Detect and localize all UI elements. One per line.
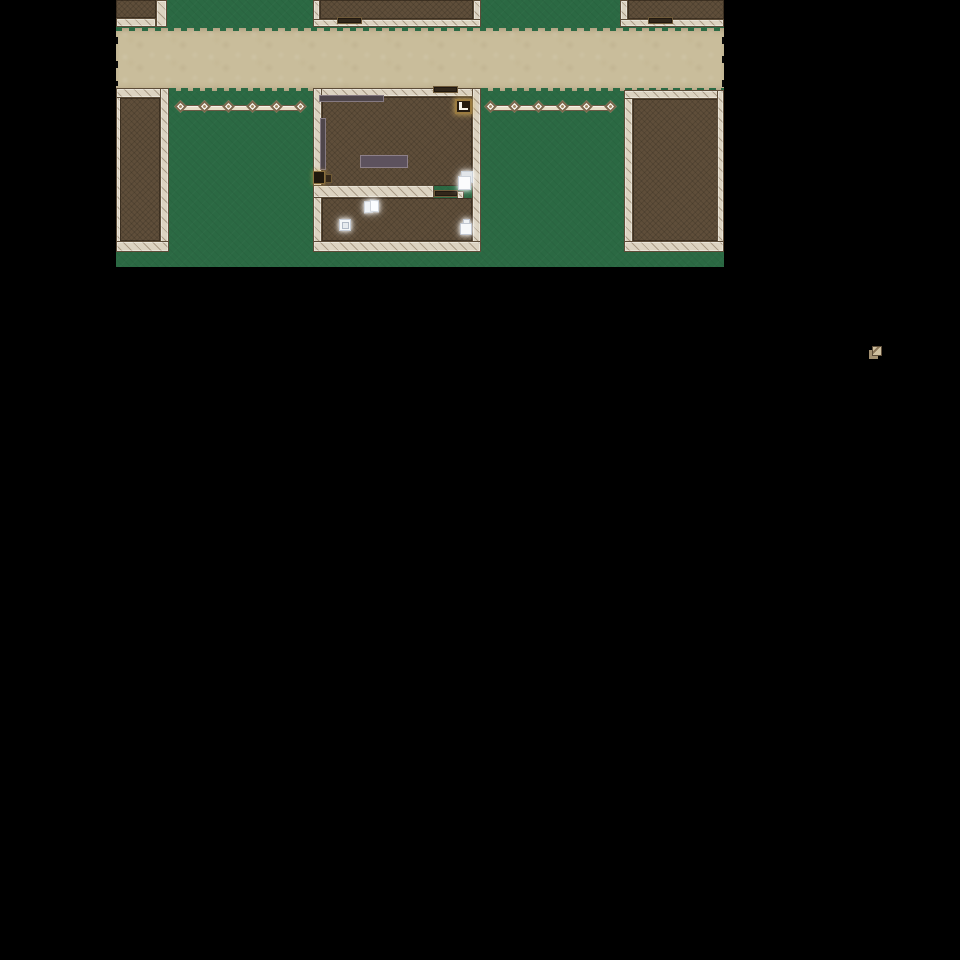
shop-door-top[interactable]: [433, 86, 458, 93]
jar-pot-item[interactable]: [460, 219, 472, 235]
building-se-wall-left: [624, 90, 633, 252]
dirt-road-edge-top: [116, 28, 724, 31]
parcel-box-item[interactable]: [339, 219, 351, 231]
stove-item[interactable]: [313, 171, 325, 184]
game-map: [116, 0, 724, 267]
map-edge-tick-w2: [116, 61, 118, 68]
shop-side-shelf: [320, 118, 326, 170]
building-se-wall-right: [717, 90, 724, 252]
building-sw-wall-right: [160, 88, 169, 252]
screen: [0, 0, 960, 960]
shop-divider-wall: [313, 185, 434, 198]
open-ledger-item[interactable]: [455, 99, 472, 114]
map-edge-tick-w3: [116, 81, 118, 86]
building-sw-floor: [120, 98, 160, 241]
building-ne-floor: [628, 0, 724, 19]
shop-door-inner[interactable]: [434, 190, 458, 197]
building-sw-wall-bottom: [116, 241, 169, 252]
shop-counter-shelf: [319, 95, 384, 102]
paper-note-item[interactable]: [458, 171, 473, 189]
shop-table: [360, 155, 408, 168]
shop-wall-left: [313, 88, 322, 252]
building-n-door[interactable]: [337, 17, 362, 24]
map-edge-tick-w1: [116, 37, 118, 44]
map-edge-tick-e2: [722, 56, 724, 63]
building-nw-wall-bottom: [116, 18, 156, 27]
shop-floor-main: [322, 97, 472, 186]
map-edge-tick-e1: [722, 37, 724, 44]
map-edge-tick-e3: [722, 80, 724, 87]
open-book-item[interactable]: [364, 200, 379, 211]
shop-wall-right: [472, 88, 481, 252]
building-nw-floor: [116, 0, 156, 18]
shop-wall-bottom: [313, 241, 481, 252]
scroll-item-icon[interactable]: [869, 346, 882, 359]
building-nw-wall-right: [156, 0, 167, 27]
building-se-wall-top: [624, 90, 724, 99]
building-se-wall-bottom: [624, 241, 724, 252]
stove-side-box: [325, 174, 332, 183]
building-ne-door[interactable]: [648, 17, 673, 24]
dirt-road: [116, 28, 724, 91]
building-se-floor: [633, 99, 718, 241]
